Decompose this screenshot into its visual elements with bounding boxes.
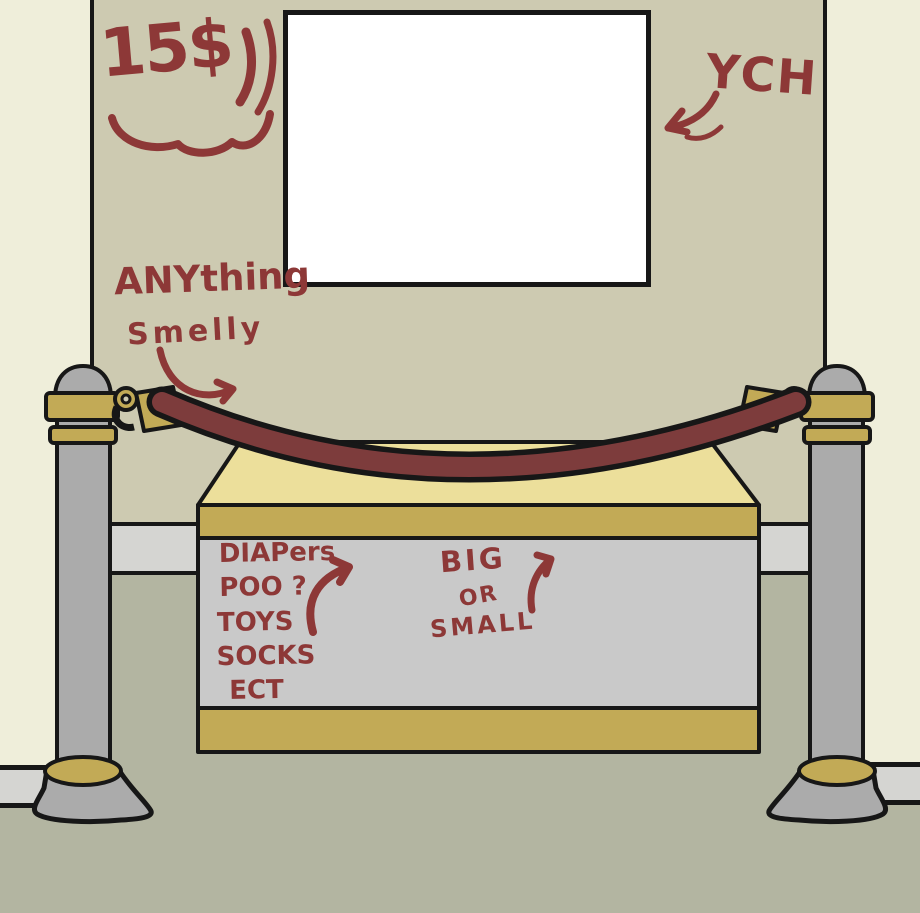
right-side-wall [825, 0, 920, 767]
pedestal-note-line3: TOYS [217, 604, 337, 640]
right-side-baseboard [825, 767, 920, 805]
ych-graffiti: YCH [704, 48, 819, 103]
left-side-baseboard [0, 770, 92, 808]
price-graffiti: 15$ [97, 10, 234, 87]
pedestal-note-line5: ECT [229, 672, 338, 708]
size-note-line1: BIG [439, 544, 507, 578]
wall-note-line1: ANYthing [113, 257, 310, 301]
pedestal-gold-trim-lower [198, 708, 759, 752]
size-note-line2: OR [457, 583, 500, 612]
pedestal-note-line4: SOCKS [216, 638, 337, 674]
left-side-wall [0, 0, 92, 770]
pedestal-note: DIAPers POO ? TOYS SOCKS ECT [219, 535, 338, 709]
blank-canvas-frame [283, 10, 651, 287]
wall-note-line2: Smelly [126, 313, 265, 350]
size-note-line3: SMALL [429, 608, 536, 641]
pedestal-note-line2: POO ? [219, 569, 336, 605]
pedestal-note-line1: DIAPers [219, 535, 336, 571]
